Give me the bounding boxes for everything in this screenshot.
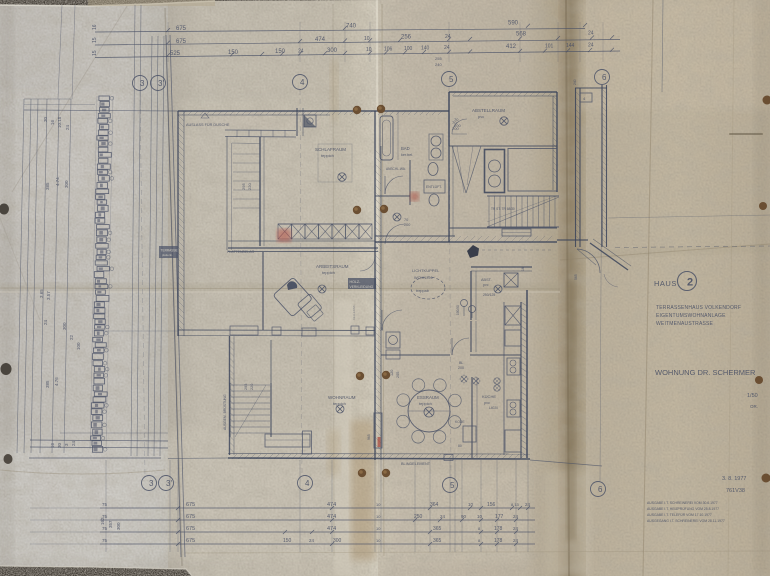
- svg-text:4: 4: [300, 78, 305, 87]
- svg-text:240: 240: [573, 79, 577, 85]
- svg-text:3.57: 3.57: [46, 291, 51, 300]
- svg-text:10: 10: [376, 514, 381, 519]
- svg-text:24: 24: [445, 34, 451, 40]
- svg-text:AUSGABE I.T. TELEFÜR VOM 17: AUSGABE I.T. TELEFÜR VOM 17.10.1977: [647, 513, 712, 517]
- svg-text:PLATTENBELAG: PLATTENBELAG: [227, 250, 254, 254]
- svg-text:365: 365: [433, 526, 442, 532]
- svg-text:295: 295: [241, 183, 246, 190]
- svg-text:WOHNRAUM: WOHNRAUM: [328, 395, 356, 400]
- svg-text:BLINDELEMENT: BLINDELEMENT: [401, 462, 431, 466]
- svg-text:SCHLAFRAUM: SCHLAFRAUM: [315, 147, 346, 152]
- svg-text:75: 75: [102, 502, 108, 507]
- svg-text:200: 200: [404, 223, 410, 227]
- svg-text:365: 365: [433, 538, 442, 544]
- svg-text:474: 474: [315, 37, 326, 43]
- svg-text:205: 205: [396, 372, 400, 378]
- svg-text:100: 100: [76, 342, 81, 350]
- svg-text:177: 177: [495, 514, 504, 520]
- svg-text:385: 385: [45, 182, 50, 190]
- svg-text:ANSCHL.WA.: ANSCHL.WA.: [386, 167, 406, 171]
- svg-text:150: 150: [228, 50, 239, 56]
- svg-text:675: 675: [186, 538, 195, 544]
- svg-text:EIGENTUMSWOHNANLAGE: EIGENTUMSWOHNANLAGE: [656, 313, 726, 319]
- svg-text:250: 250: [414, 514, 423, 520]
- svg-text:10: 10: [376, 526, 381, 531]
- svg-text:WOHN-/26: WOHN-/26: [414, 276, 433, 280]
- svg-text:101: 101: [545, 44, 554, 50]
- svg-text:3: 3: [149, 479, 154, 488]
- svg-text:200: 200: [452, 126, 459, 131]
- svg-text:474: 474: [327, 526, 336, 532]
- svg-text:120: 120: [390, 370, 394, 376]
- svg-text:AUSGEM. BRÜSTUNG: AUSGEM. BRÜSTUNG: [223, 394, 227, 430]
- svg-text:190/90: 190/90: [456, 305, 460, 315]
- svg-text:BL: BL: [459, 361, 463, 365]
- svg-text:5: 5: [450, 481, 455, 490]
- svg-text:24: 24: [588, 43, 594, 49]
- svg-text:LICHTKUPPEL: LICHTKUPPEL: [412, 268, 440, 273]
- svg-text:675: 675: [176, 39, 187, 45]
- svg-text:220: 220: [250, 384, 254, 390]
- svg-text:10: 10: [376, 538, 381, 543]
- svg-text:6: 6: [598, 485, 603, 494]
- svg-text:pvc: pvc: [478, 114, 484, 119]
- svg-text:L4020: L4020: [489, 406, 498, 410]
- svg-text:AUSGABE I.T. SCHREINEREI VOM: AUSGABE I.T. SCHREINEREI VOM 30.6.1977: [647, 501, 718, 505]
- svg-text:8,13: 8,13: [511, 502, 520, 507]
- svg-text:24: 24: [513, 538, 519, 543]
- svg-text:1/50: 1/50: [747, 393, 758, 399]
- svg-text:ESSRAUM: ESSRAUM: [417, 395, 439, 400]
- svg-text:412: 412: [506, 44, 517, 50]
- svg-text:16: 16: [92, 24, 98, 30]
- svg-text:teppich: teppich: [419, 401, 432, 406]
- svg-text:AUSGABE I.T. HEIZPRÜFUNG VOM: AUSGABE I.T. HEIZPRÜFUNG VOM 25.8.1977: [647, 507, 719, 511]
- svg-text:525: 525: [170, 51, 181, 57]
- svg-text:10: 10: [364, 36, 370, 42]
- svg-text:ENTLÜFT.: ENTLÜFT.: [426, 185, 442, 189]
- svg-text:6: 6: [602, 73, 607, 82]
- svg-text:KODE: KODE: [455, 420, 465, 424]
- svg-text:90: 90: [461, 514, 467, 519]
- svg-text:ABSTELLRAUM: ABSTELLRAUM: [472, 108, 505, 113]
- svg-text:300: 300: [62, 322, 67, 330]
- svg-text:TR ST. TR 68/30: TR ST. TR 68/30: [491, 207, 515, 211]
- svg-text:2: 2: [687, 277, 693, 289]
- svg-text:KÜCHE: KÜCHE: [482, 394, 496, 399]
- svg-text:75: 75: [102, 514, 108, 519]
- svg-text:ABST.: ABST.: [481, 278, 492, 282]
- svg-text:300: 300: [333, 538, 342, 544]
- svg-text:3.65: 3.65: [39, 289, 44, 298]
- svg-text:TERRASSE: TERRASSE: [161, 249, 178, 253]
- svg-text:474: 474: [327, 502, 336, 508]
- svg-text:300: 300: [116, 522, 121, 530]
- svg-text:24: 24: [525, 502, 531, 507]
- svg-text:565: 565: [574, 274, 578, 280]
- svg-text:10: 10: [477, 514, 483, 519]
- svg-text:TERRASSENHAUS VOLKENDORF: TERRASSENHAUS VOLKENDORF: [656, 305, 741, 311]
- svg-text:24: 24: [309, 538, 315, 543]
- svg-text:965: 965: [367, 434, 371, 440]
- svg-text:24: 24: [513, 514, 519, 519]
- svg-text:teppich: teppich: [322, 270, 335, 275]
- svg-text:AUSLASS FÜR DUSCHE: AUSLASS FÜR DUSCHE: [186, 123, 230, 127]
- svg-text:10: 10: [366, 47, 372, 53]
- svg-text:10: 10: [376, 502, 381, 507]
- svg-text:568: 568: [516, 32, 527, 38]
- svg-text:24: 24: [513, 526, 519, 531]
- svg-text:590: 590: [508, 21, 519, 27]
- svg-text:WOHNUNG DR. SCHERMER: WOHNUNG DR. SCHERMER: [655, 368, 756, 377]
- svg-text:220: 220: [247, 183, 252, 190]
- svg-text:24: 24: [588, 31, 594, 37]
- svg-text:HOLZ-: HOLZ-: [350, 280, 362, 284]
- svg-text:15: 15: [92, 50, 98, 56]
- svg-text:150: 150: [283, 538, 292, 544]
- svg-text:24: 24: [444, 45, 450, 51]
- svg-text:385: 385: [45, 380, 50, 388]
- svg-text:3': 3': [166, 479, 172, 488]
- svg-text:75: 75: [102, 526, 108, 531]
- svg-text:761V38: 761V38: [726, 488, 745, 494]
- svg-text:364: 364: [430, 502, 439, 508]
- svg-text:WEITMENAUSTRASSE: WEITMENAUSTRASSE: [656, 321, 714, 327]
- svg-text:240: 240: [435, 62, 442, 67]
- svg-text:70: 70: [452, 120, 457, 125]
- svg-text:75: 75: [102, 538, 108, 543]
- svg-text:HAUS: HAUS: [654, 279, 677, 288]
- svg-text:675: 675: [186, 526, 195, 532]
- svg-text:AUSGEGANG I.T. SCHREINEREI V: AUSGEGANG I.T. SCHREINEREI VOM 28.11.197…: [647, 519, 725, 523]
- svg-text:675: 675: [186, 502, 195, 508]
- svg-text:10: 10: [468, 502, 474, 507]
- svg-text:30: 30: [43, 116, 48, 122]
- svg-text:24: 24: [43, 319, 48, 325]
- svg-text:OR.: OR.: [750, 404, 758, 409]
- svg-text:70: 70: [404, 218, 408, 222]
- svg-text:ARBEITSRAUM: ARBEITSRAUM: [316, 264, 349, 269]
- svg-text:295: 295: [244, 384, 248, 390]
- svg-text:pvc: pvc: [483, 283, 489, 287]
- svg-text:675: 675: [186, 514, 195, 520]
- svg-text:24: 24: [298, 49, 304, 55]
- svg-text:474: 474: [327, 514, 336, 520]
- svg-text:15: 15: [92, 37, 98, 43]
- svg-text:24: 24: [71, 440, 76, 446]
- svg-text:106: 106: [384, 47, 393, 53]
- svg-text:178: 178: [494, 526, 503, 532]
- svg-text:4.74: 4.74: [55, 177, 60, 186]
- svg-text:178: 178: [494, 538, 503, 544]
- svg-text:BAD: BAD: [401, 146, 410, 151]
- svg-text:plattenb.: plattenb.: [162, 253, 173, 257]
- svg-text:VERKLEIDUNG: VERKLEIDUNG: [350, 285, 374, 289]
- svg-text:teppich: teppich: [321, 153, 334, 158]
- svg-text:KELLERAB: KELLERAB: [352, 305, 356, 320]
- svg-text:ker.bel.: ker.bel.: [401, 153, 413, 157]
- svg-text:300: 300: [327, 48, 338, 54]
- svg-text:357: 357: [108, 520, 113, 528]
- svg-text:10: 10: [380, 327, 384, 331]
- svg-text:300: 300: [64, 180, 69, 188]
- svg-text:256: 256: [401, 35, 412, 41]
- svg-text:24: 24: [440, 514, 446, 519]
- svg-text:740: 740: [346, 24, 357, 30]
- svg-text:100: 100: [404, 46, 413, 52]
- svg-text:5: 5: [449, 75, 454, 84]
- svg-text:3. 8. 1977: 3. 8. 1977: [722, 476, 746, 482]
- svg-text:250/125: 250/125: [483, 293, 495, 297]
- svg-text:24: 24: [65, 124, 70, 130]
- svg-text:80: 80: [458, 444, 462, 448]
- svg-text:16: 16: [50, 119, 55, 125]
- svg-text:treppab: treppab: [416, 289, 429, 293]
- svg-text:22: 22: [69, 334, 74, 340]
- svg-text:675: 675: [176, 26, 187, 32]
- svg-text:156: 156: [487, 502, 496, 508]
- svg-text:200: 200: [458, 366, 464, 370]
- svg-text:144: 144: [566, 43, 575, 49]
- svg-text:4: 4: [305, 479, 310, 488]
- svg-text:4.76: 4.76: [54, 377, 59, 386]
- svg-text:pvc: pvc: [484, 401, 490, 405]
- svg-text:10.15: 10.15: [57, 116, 62, 128]
- svg-text:140: 140: [421, 46, 430, 52]
- svg-text:3: 3: [140, 79, 145, 88]
- svg-text:150: 150: [275, 49, 286, 55]
- svg-text:255: 255: [435, 56, 442, 61]
- svg-text:16: 16: [521, 267, 525, 271]
